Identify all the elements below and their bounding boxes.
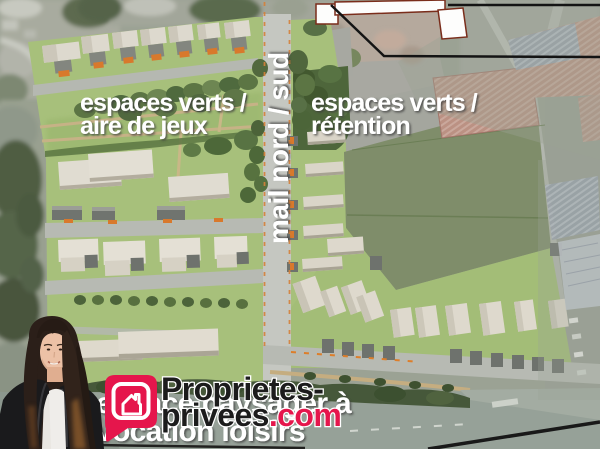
svg-text:aire de jeux: aire de jeux	[80, 112, 208, 140]
svg-text:mail nord / sud: mail nord / sud	[263, 52, 294, 244]
svg-text:privees.com: privees.com	[161, 397, 341, 433]
svg-text:rétention: rétention	[311, 112, 410, 140]
